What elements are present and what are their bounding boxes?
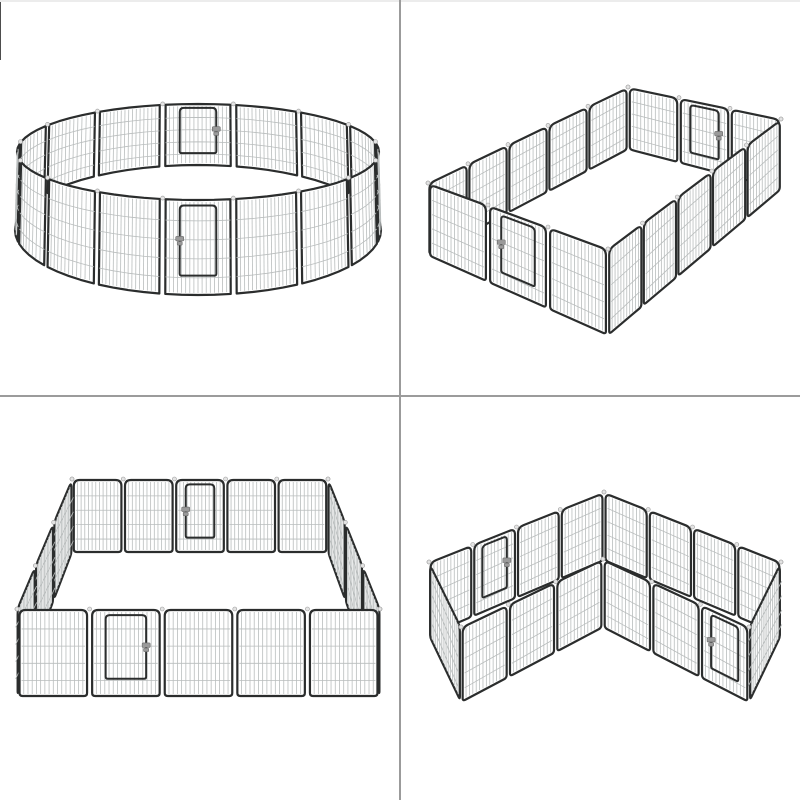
horizontal-divider [0, 395, 800, 397]
playpen-square-illustration [0, 397, 399, 800]
vertical-divider [399, 0, 401, 800]
view-square-layout [0, 397, 399, 800]
product-image [0, 0, 800, 800]
view-rectangle-layout [401, 2, 800, 395]
view-circle-layout [0, 2, 399, 395]
playpen-l-shape-illustration [401, 397, 800, 800]
view-l-shape-layout [401, 397, 800, 800]
playpen-rectangle-illustration [401, 2, 800, 395]
playpen-circle-illustration [0, 2, 399, 395]
